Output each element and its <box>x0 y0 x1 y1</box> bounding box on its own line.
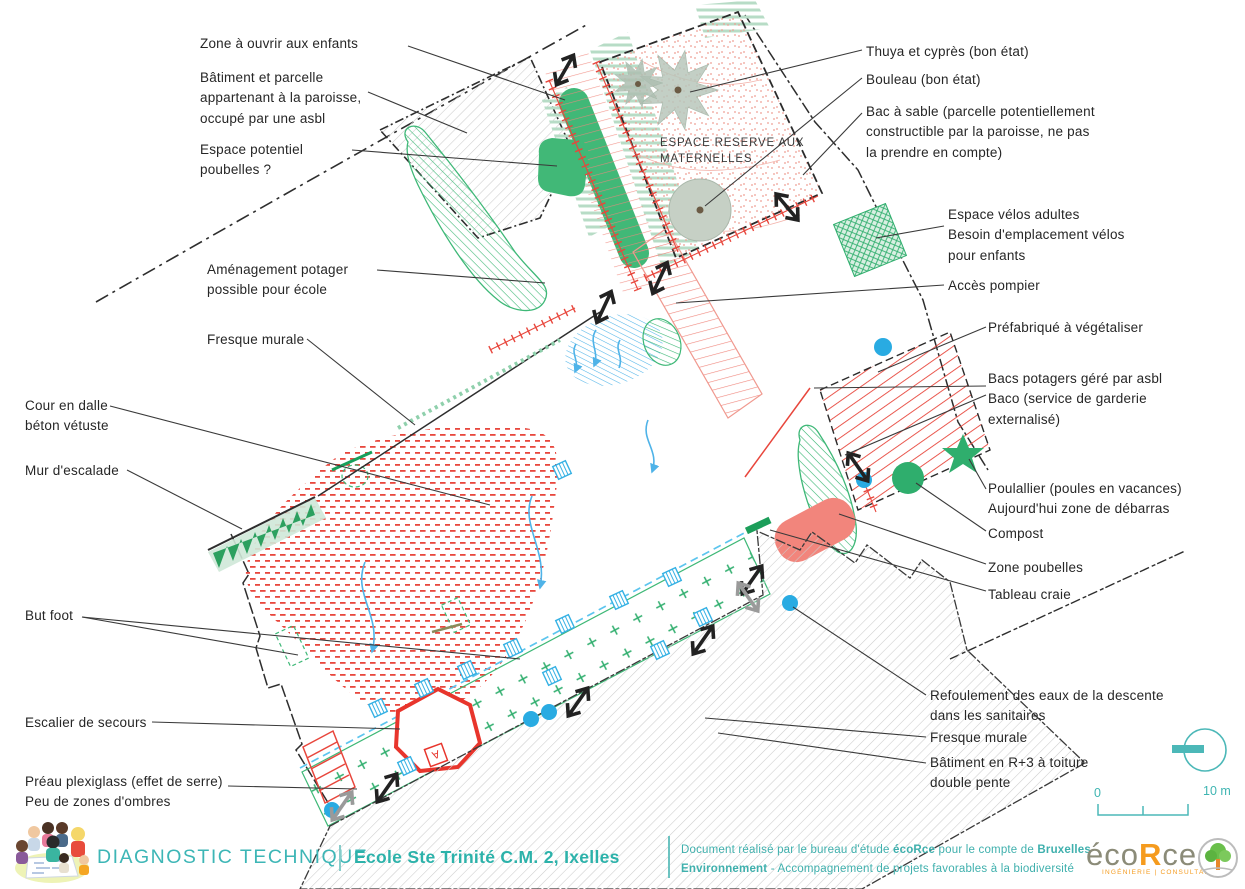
bike-parking <box>834 204 907 277</box>
tree-logo-icon <box>1196 836 1240 880</box>
annotation-fresque-droite: Fresque murale <box>930 728 1027 748</box>
annotation-refoulement: Refoulement des eaux de la descente dans… <box>930 686 1164 727</box>
footer-credit: Document réalisé par le bureau d'étude é… <box>681 841 1091 879</box>
annotation-poulallier: Poulallier (poules en vacances) Aujourd'… <box>988 479 1182 520</box>
annotation-batiment-r3: Bâtiment en R+3 à toiture double pente <box>930 753 1088 794</box>
page: A <box>0 0 1245 889</box>
footer-brand: DIAGNOSTIC TECHNIQUE <box>97 846 368 869</box>
ecorce-logo: écoRce <box>1086 839 1197 870</box>
annotation-but-foot: But foot <box>25 606 73 626</box>
annotation-bacs-potagers: Bacs potagers géré par asbl Baco (servic… <box>988 369 1162 430</box>
annotation-mur-escalade: Mur d'escalade <box>25 461 119 481</box>
water-flow-arrow <box>646 420 654 472</box>
annotation-espace-poubelles: Espace potentiel poubelles ? <box>200 140 303 181</box>
annotation-cour-dalle: Cour en dalle béton vétuste <box>25 396 109 437</box>
scale-end: 10 m <box>1203 784 1231 798</box>
annotation-espace-velos: Espace vélos adultes Besoin d'emplacemen… <box>948 205 1125 266</box>
maternelles-title-line2: MATERNELLES <box>660 153 752 165</box>
people-logo <box>6 816 98 886</box>
annotation-acces-pompier: Accès pompier <box>948 276 1040 296</box>
bin-space-blob <box>538 138 588 196</box>
annotation-batiment-paroisse: Bâtiment et parcelle appartenant à la pa… <box>200 68 361 129</box>
maternelles-title-line1: ESPACE RESERVE AUX <box>660 137 804 149</box>
annotation-bouleau: Bouleau (bon état) <box>866 70 981 90</box>
compost-icon <box>892 462 924 494</box>
annotation-fresque-gauche: Fresque murale <box>207 330 304 350</box>
annotation-bac-a-sable: Bac à sable (parcelle potentiellement co… <box>866 102 1095 163</box>
footer-divider <box>668 836 670 878</box>
chalkboard-icon <box>745 517 772 534</box>
annotation-preau: Préau plexiglass (effet de serre) Peu de… <box>25 772 223 813</box>
annotation-zone-poubelles: Zone poubelles <box>988 558 1083 578</box>
footer-project-title: Ecole Ste Trinité C.M. 2, Ixelles <box>354 847 620 868</box>
annotation-escalier: Escalier de secours <box>25 713 147 733</box>
footer-divider <box>339 845 341 871</box>
annotation-tableau-craie: Tableau craie <box>988 585 1071 605</box>
annotation-prefabrique: Préfabriqué à végétaliser <box>988 318 1143 338</box>
scale-widget <box>1098 729 1226 815</box>
scale-start: 0 <box>1094 786 1101 800</box>
annotation-compost: Compost <box>988 524 1043 544</box>
annotation-thuya: Thuya et cyprès (bon état) <box>866 42 1029 62</box>
annotation-zone-ouvrir: Zone à ouvrir aux enfants <box>200 34 358 54</box>
annotation-amenagement-potager: Aménagement potager possible pour école <box>207 260 348 301</box>
